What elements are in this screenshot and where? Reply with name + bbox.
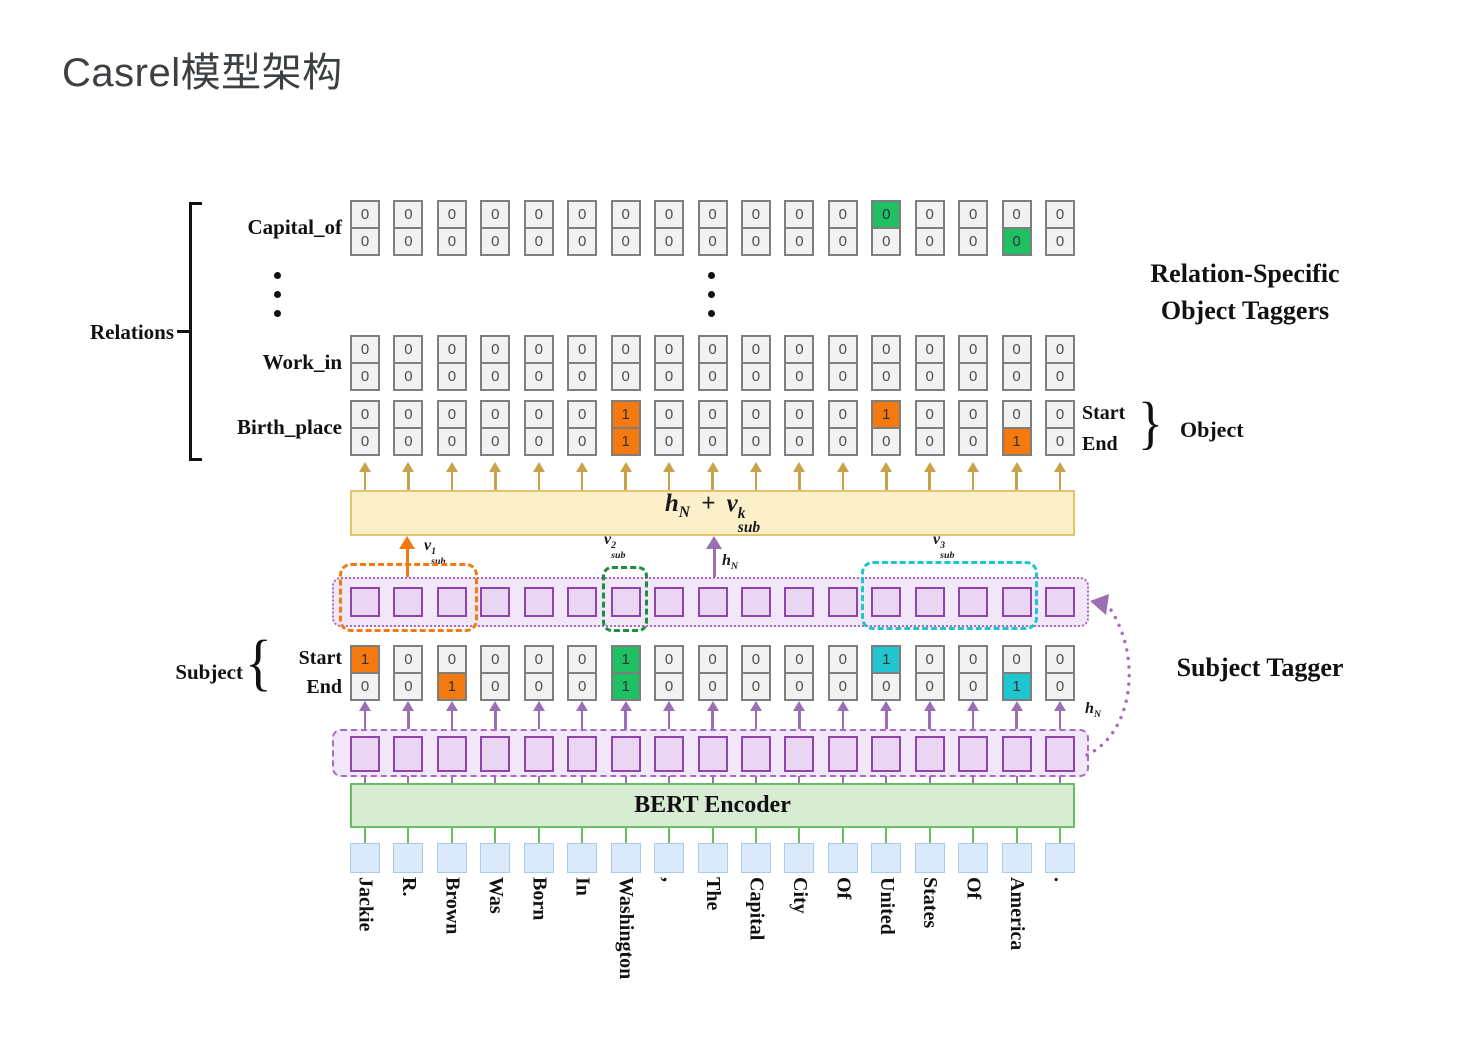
connector-line bbox=[581, 776, 583, 783]
capital-of-tag-row: 0000000000000000000000000000000000 bbox=[350, 200, 1075, 256]
connector bbox=[871, 776, 901, 783]
token-word: R. bbox=[393, 877, 423, 979]
relations-bracket-top bbox=[189, 202, 202, 205]
token-word-text: Washington bbox=[614, 877, 637, 979]
tag-cell: 0 bbox=[350, 400, 380, 429]
tag-cell: 0 bbox=[524, 200, 554, 229]
tag-cell: 0 bbox=[393, 200, 423, 229]
connector-line bbox=[972, 776, 974, 783]
arrow-stem bbox=[842, 472, 845, 490]
connector bbox=[784, 776, 814, 783]
connector bbox=[480, 776, 510, 783]
arrowhead bbox=[967, 462, 979, 472]
connector bbox=[437, 776, 467, 783]
connector-line bbox=[885, 828, 887, 843]
connector-line bbox=[755, 776, 757, 783]
tag-cell: 0 bbox=[871, 227, 901, 256]
encoder-output-rect bbox=[871, 736, 901, 772]
arrowhead bbox=[359, 701, 371, 711]
tag-cell: 0 bbox=[1002, 200, 1032, 229]
relation-birth-place-label: Birth_place bbox=[102, 415, 342, 440]
input-token-box bbox=[350, 843, 380, 873]
tag-cell: 0 bbox=[611, 227, 641, 256]
up-arrow bbox=[958, 462, 988, 490]
connector bbox=[1045, 776, 1075, 783]
connector-line bbox=[1016, 776, 1018, 783]
tag-cell: 0 bbox=[915, 227, 945, 256]
tag-cell: 0 bbox=[828, 335, 858, 364]
arrowhead bbox=[1054, 462, 1066, 472]
token-word: City bbox=[784, 877, 814, 979]
arrowhead bbox=[924, 701, 936, 711]
connector bbox=[1002, 828, 1032, 843]
tag-cell: 0 bbox=[698, 400, 728, 429]
connector bbox=[611, 776, 641, 783]
up-arrow bbox=[784, 462, 814, 490]
connector bbox=[654, 828, 684, 843]
tag-cell: 0 bbox=[1045, 672, 1075, 701]
encoder-output-rect bbox=[915, 736, 945, 772]
tag-cell-pair: 00 bbox=[1045, 645, 1075, 701]
arrow-stem bbox=[1059, 472, 1062, 490]
tag-cell: 0 bbox=[350, 200, 380, 229]
tag-cell: 0 bbox=[437, 227, 467, 256]
tag-cell: 0 bbox=[828, 645, 858, 674]
encoder-output-square bbox=[654, 587, 684, 617]
tag-cell: 0 bbox=[480, 672, 510, 701]
tag-cell: 0 bbox=[1002, 645, 1032, 674]
connector bbox=[698, 776, 728, 783]
tag-cell-pair: 00 bbox=[915, 200, 945, 256]
tag-cell: 0 bbox=[915, 362, 945, 391]
tag-cell: 0 bbox=[915, 427, 945, 456]
tag-cell-pair: 00 bbox=[915, 645, 945, 701]
connector bbox=[958, 828, 988, 843]
tag-cell: 0 bbox=[393, 362, 423, 391]
input-token-box bbox=[437, 843, 467, 873]
arrow-stem bbox=[668, 472, 671, 490]
input-token-box bbox=[958, 843, 988, 873]
input-token-box bbox=[698, 843, 728, 873]
connector bbox=[958, 776, 988, 783]
connector bbox=[567, 776, 597, 783]
birth-place-tag-row: 0000000000001100000000001000000100 bbox=[350, 400, 1075, 456]
tag-cell: 0 bbox=[567, 227, 597, 256]
up-arrow bbox=[524, 462, 554, 490]
tag-cell: 0 bbox=[1045, 227, 1075, 256]
arrowhead bbox=[620, 701, 632, 711]
tag-cell-pair: 00 bbox=[828, 400, 858, 456]
encoder-output-square bbox=[1045, 587, 1075, 617]
tag-cell: 0 bbox=[741, 200, 771, 229]
arrowhead bbox=[576, 462, 588, 472]
tag-cell-pair: 00 bbox=[741, 645, 771, 701]
tag-cell: 0 bbox=[524, 227, 554, 256]
tag-cell: 0 bbox=[958, 362, 988, 391]
connector bbox=[611, 828, 641, 843]
tag-cell: 0 bbox=[698, 227, 728, 256]
arrow-stem bbox=[581, 472, 584, 490]
token-word: Brown bbox=[437, 877, 467, 979]
tag-cell-pair: 00 bbox=[784, 335, 814, 391]
token-word: In bbox=[567, 877, 597, 979]
tag-cell-pair: 00 bbox=[654, 335, 684, 391]
encoder-output-rect bbox=[480, 736, 510, 772]
tag-cell: 0 bbox=[1045, 200, 1075, 229]
tag-cell: 0 bbox=[611, 200, 641, 229]
arrowhead bbox=[967, 701, 979, 711]
tag-cell: 0 bbox=[393, 400, 423, 429]
tag-cell-pair: 00 bbox=[871, 200, 901, 256]
tag-cell: 0 bbox=[1045, 645, 1075, 674]
tag-cell: 0 bbox=[958, 427, 988, 456]
up-arrow bbox=[611, 701, 641, 729]
tag-cell-pair: 00 bbox=[567, 400, 597, 456]
arrowhead bbox=[837, 701, 849, 711]
up-arrow bbox=[611, 462, 641, 490]
encoder-output-rect bbox=[698, 736, 728, 772]
token-word-text: Was bbox=[484, 877, 507, 979]
connector bbox=[871, 828, 901, 843]
tag-cell: 0 bbox=[828, 200, 858, 229]
connector-line bbox=[364, 776, 366, 783]
tag-cell: 0 bbox=[524, 672, 554, 701]
tag-cell: 0 bbox=[524, 335, 554, 364]
arrow-stem bbox=[451, 711, 454, 729]
tag-cell-pair: 00 bbox=[524, 200, 554, 256]
tag-cell-pair: 11 bbox=[611, 400, 641, 456]
connector-line bbox=[668, 828, 670, 843]
tag-cell-pair: 00 bbox=[1002, 200, 1032, 256]
tag-cell: 0 bbox=[1045, 427, 1075, 456]
tag-cell-pair: 00 bbox=[350, 200, 380, 256]
tag-cell-pair: 10 bbox=[350, 645, 380, 701]
input-token-box bbox=[393, 843, 423, 873]
tag-cell: 0 bbox=[567, 335, 597, 364]
up-arrow bbox=[524, 701, 554, 729]
tag-cell: 0 bbox=[654, 200, 684, 229]
tag-cell: 0 bbox=[741, 672, 771, 701]
tag-cell-pair: 00 bbox=[480, 200, 510, 256]
tag-cell: 1 bbox=[1002, 672, 1032, 701]
token-word-text: Born bbox=[527, 877, 550, 979]
up-arrow bbox=[958, 701, 988, 729]
tag-cell-pair: 00 bbox=[915, 400, 945, 456]
subject-tagger-label: Subject Tagger bbox=[1150, 653, 1370, 683]
tag-cell-pair: 00 bbox=[567, 200, 597, 256]
tag-cell: 1 bbox=[611, 645, 641, 674]
tag-cell-pair: 00 bbox=[611, 335, 641, 391]
up-arrow bbox=[741, 701, 771, 729]
encoder-output-rects bbox=[350, 736, 1075, 772]
tag-cell: 0 bbox=[958, 672, 988, 701]
tag-cell-pair: 00 bbox=[1045, 400, 1075, 456]
connector bbox=[828, 828, 858, 843]
tag-cell: 0 bbox=[698, 645, 728, 674]
up-arrow bbox=[393, 462, 423, 490]
input-token-box bbox=[741, 843, 771, 873]
tag-cell: 0 bbox=[698, 362, 728, 391]
tag-cell-pair: 00 bbox=[958, 335, 988, 391]
arrowhead bbox=[837, 462, 849, 472]
token-word: Washington bbox=[611, 877, 641, 979]
tag-cell: 0 bbox=[741, 362, 771, 391]
connector-line bbox=[1059, 828, 1061, 843]
encoder-output-rect bbox=[437, 736, 467, 772]
tag-cell-pair: 01 bbox=[437, 645, 467, 701]
token-word-text: Capital bbox=[744, 877, 767, 979]
connector-line bbox=[712, 828, 714, 843]
token-word-text: , bbox=[658, 877, 681, 979]
arrow-stem bbox=[538, 472, 541, 490]
up-arrow bbox=[784, 701, 814, 729]
tag-cell: 0 bbox=[784, 427, 814, 456]
connector-line bbox=[538, 828, 540, 843]
tag-cell-pair: 00 bbox=[958, 400, 988, 456]
tag-cell-pair: 00 bbox=[828, 645, 858, 701]
encoder-output-rect bbox=[958, 736, 988, 772]
connector bbox=[1045, 828, 1075, 843]
arrowhead bbox=[620, 462, 632, 472]
tag-cell: 0 bbox=[524, 400, 554, 429]
encoder-output-rect bbox=[611, 736, 641, 772]
connector-line bbox=[668, 776, 670, 783]
arrow-stem bbox=[407, 472, 410, 490]
connector-line bbox=[842, 776, 844, 783]
tag-cell: 1 bbox=[1002, 427, 1032, 456]
connector-line bbox=[755, 828, 757, 843]
tag-cell: 0 bbox=[1002, 227, 1032, 256]
up-arrow bbox=[828, 701, 858, 729]
tag-cell-pair: 00 bbox=[654, 200, 684, 256]
arrowhead bbox=[402, 462, 414, 472]
tag-cell: 0 bbox=[741, 335, 771, 364]
tag-cell: 0 bbox=[437, 362, 467, 391]
tag-cell: 0 bbox=[915, 400, 945, 429]
connector bbox=[393, 776, 423, 783]
tag-cell-pair: 00 bbox=[871, 335, 901, 391]
up-arrow bbox=[437, 462, 467, 490]
arrowhead bbox=[1011, 701, 1023, 711]
tag-cell: 0 bbox=[654, 645, 684, 674]
arrow-stem bbox=[972, 472, 975, 490]
tag-cell-pair: 00 bbox=[350, 400, 380, 456]
arrow-stem bbox=[494, 711, 497, 729]
ellipsis-dots-left bbox=[274, 272, 281, 317]
up-arrow bbox=[654, 462, 684, 490]
arrow-stem bbox=[624, 711, 627, 729]
input-token-box bbox=[915, 843, 945, 873]
tag-cell: 0 bbox=[480, 645, 510, 674]
tag-cell: 0 bbox=[654, 672, 684, 701]
up-arrow bbox=[393, 701, 423, 729]
tag-cell: 0 bbox=[741, 227, 771, 256]
tag-cell: 0 bbox=[871, 200, 901, 229]
encoder-output-square bbox=[524, 587, 554, 617]
token-word-text: Jackie bbox=[354, 877, 377, 979]
tag-cell: 0 bbox=[654, 362, 684, 391]
token-word-text: Brown bbox=[440, 877, 463, 979]
page-title: Casrel模型架构 bbox=[62, 40, 343, 98]
tag-cell-pair: 00 bbox=[437, 200, 467, 256]
tag-cell: 0 bbox=[784, 227, 814, 256]
input-token-box bbox=[567, 843, 597, 873]
connector bbox=[567, 828, 597, 843]
tag-cell-pair: 00 bbox=[393, 335, 423, 391]
connector bbox=[393, 828, 423, 843]
connector-line bbox=[798, 828, 800, 843]
connector-line bbox=[625, 828, 627, 843]
arrowhead bbox=[1054, 701, 1066, 711]
connector-line bbox=[451, 776, 453, 783]
tag-cell-pair: 00 bbox=[784, 400, 814, 456]
input-token-boxes bbox=[350, 843, 1075, 873]
tag-cell-pair: 00 bbox=[654, 645, 684, 701]
token-word: Capital bbox=[741, 877, 771, 979]
tag-cell-pair: 00 bbox=[654, 400, 684, 456]
tag-cell: 0 bbox=[654, 400, 684, 429]
subject-end-label: End bbox=[268, 676, 342, 699]
tag-cell: 1 bbox=[350, 645, 380, 674]
arrowhead bbox=[489, 462, 501, 472]
tag-cell: 0 bbox=[784, 400, 814, 429]
arrow-stem bbox=[624, 472, 627, 490]
tag-cell-pair: 00 bbox=[958, 645, 988, 701]
tag-cell: 0 bbox=[871, 335, 901, 364]
arrowhead bbox=[533, 701, 545, 711]
encoder-output-rect bbox=[1002, 736, 1032, 772]
tag-cell: 0 bbox=[654, 227, 684, 256]
arrow-stem bbox=[494, 472, 497, 490]
encoder-output-rect bbox=[784, 736, 814, 772]
tag-cell: 0 bbox=[393, 427, 423, 456]
up-arrow bbox=[741, 462, 771, 490]
arrowhead bbox=[576, 701, 588, 711]
work-in-tag-row: 0000000000000000000000000000000000 bbox=[350, 335, 1075, 391]
connector bbox=[741, 776, 771, 783]
arrowhead bbox=[750, 701, 762, 711]
tag-cell: 0 bbox=[393, 672, 423, 701]
encoder-output-rect bbox=[828, 736, 858, 772]
arrow-stem bbox=[581, 711, 584, 729]
tag-cell: 0 bbox=[741, 645, 771, 674]
relation-work-in-label: Work_in bbox=[102, 350, 342, 375]
tag-cell: 0 bbox=[480, 227, 510, 256]
tag-cell-pair: 10 bbox=[871, 645, 901, 701]
tag-cell: 0 bbox=[915, 645, 945, 674]
arrow-stem bbox=[407, 711, 410, 729]
arrowhead bbox=[446, 462, 458, 472]
arrow-stem bbox=[1015, 472, 1018, 490]
tag-cell-pair: 00 bbox=[393, 645, 423, 701]
tag-cell: 0 bbox=[784, 200, 814, 229]
hn-label-upper: hN bbox=[722, 552, 738, 572]
up-arrow bbox=[1045, 462, 1075, 490]
token-word-text: States bbox=[918, 877, 941, 979]
tag-cell: 0 bbox=[828, 400, 858, 429]
tag-cell: 0 bbox=[567, 200, 597, 229]
tag-cell-pair: 00 bbox=[524, 400, 554, 456]
connector bbox=[350, 828, 380, 843]
relations-bracket-tick bbox=[177, 330, 189, 333]
up-arrow bbox=[871, 462, 901, 490]
tag-cell: 0 bbox=[567, 672, 597, 701]
tag-cell-pair: 01 bbox=[1002, 400, 1032, 456]
hn-feed-curve bbox=[1075, 585, 1155, 770]
tag-cell-pair: 00 bbox=[480, 645, 510, 701]
tag-cell: 0 bbox=[698, 200, 728, 229]
arrow-stem bbox=[538, 711, 541, 729]
hn-arrow bbox=[706, 536, 722, 580]
up-arrow bbox=[871, 701, 901, 729]
encoder-output-square bbox=[698, 587, 728, 617]
tag-cell-pair: 00 bbox=[698, 645, 728, 701]
connector bbox=[915, 828, 945, 843]
encoder-output-rect bbox=[393, 736, 423, 772]
tag-cell: 0 bbox=[654, 427, 684, 456]
arrowhead bbox=[880, 462, 892, 472]
token-word-text: Of bbox=[962, 877, 985, 979]
tag-cell-pair: 00 bbox=[567, 335, 597, 391]
input-token-words: JackieR.BrownWasBornInWashington,TheCapi… bbox=[350, 877, 1075, 979]
connector bbox=[915, 776, 945, 783]
up-arrow bbox=[350, 701, 380, 729]
tag-cell: 0 bbox=[828, 427, 858, 456]
connector-line bbox=[929, 828, 931, 843]
arrow-stem bbox=[885, 711, 888, 729]
tag-cell: 0 bbox=[784, 362, 814, 391]
tag-cell-pair: 01 bbox=[1002, 645, 1032, 701]
up-arrow bbox=[1002, 701, 1032, 729]
arrow-stem bbox=[668, 711, 671, 729]
tag-cell: 0 bbox=[350, 427, 380, 456]
casrel-architecture-diagram: Casrel模型架构 Relations Capital_of Work_in … bbox=[0, 0, 1464, 1038]
connector bbox=[784, 828, 814, 843]
tag-cell: 0 bbox=[1002, 362, 1032, 391]
encoder-output-square bbox=[567, 587, 597, 617]
tag-cell: 0 bbox=[350, 672, 380, 701]
tag-cell: 0 bbox=[437, 335, 467, 364]
tag-cell: 0 bbox=[524, 645, 554, 674]
object-label: Object bbox=[1180, 417, 1244, 443]
tag-cell-pair: 00 bbox=[784, 645, 814, 701]
subject1-span-box bbox=[339, 563, 478, 632]
connector-line bbox=[712, 776, 714, 783]
encoder-output-square bbox=[741, 587, 771, 617]
subject-start-label: Start bbox=[268, 647, 342, 670]
tag-cell: 0 bbox=[393, 227, 423, 256]
tag-cell: 1 bbox=[611, 400, 641, 429]
arrowhead bbox=[663, 701, 675, 711]
token-word-text: . bbox=[1049, 877, 1072, 979]
tag-cell-pair: 11 bbox=[611, 645, 641, 701]
tag-cell-pair: 00 bbox=[741, 400, 771, 456]
hn-plus-vsub-box: hN + vksub bbox=[350, 490, 1075, 536]
connector-line bbox=[494, 776, 496, 783]
tag-cell: 0 bbox=[1045, 335, 1075, 364]
connector bbox=[741, 828, 771, 843]
tag-cell-pair: 00 bbox=[828, 335, 858, 391]
token-word: United bbox=[871, 877, 901, 979]
tag-cell: 0 bbox=[480, 200, 510, 229]
tag-cell-pair: 00 bbox=[1002, 335, 1032, 391]
token-word-text: City bbox=[788, 877, 811, 979]
subject-tagger-arrows bbox=[350, 701, 1075, 729]
tag-cell: 0 bbox=[1045, 362, 1075, 391]
connector bbox=[828, 776, 858, 783]
encoder-output-rect bbox=[350, 736, 380, 772]
arrowhead bbox=[663, 462, 675, 472]
